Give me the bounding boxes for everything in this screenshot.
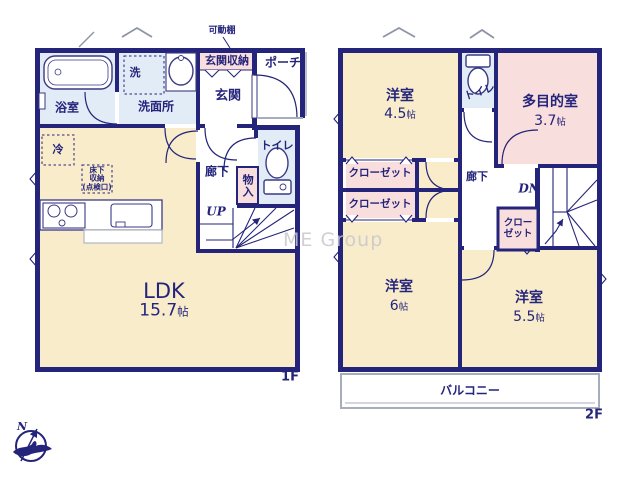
label-closet3: クロー ゼット: [504, 218, 533, 239]
label-ldk-size: 15.7帖: [139, 301, 188, 320]
label-bedroom2: 洋室: [385, 280, 413, 296]
label-fridge: 冷: [53, 144, 64, 156]
label-bedroom1: 洋室: [386, 89, 414, 105]
label-floor2: 2F: [585, 409, 603, 424]
bath-counter: [39, 93, 45, 109]
label-movable-shelf: 可動棚: [208, 26, 235, 36]
room-ldk-left: [40, 128, 196, 367]
toilet-tank-1f: [264, 180, 291, 194]
label-storage-1f: 物入: [241, 174, 253, 198]
shelf-callout-line: [223, 37, 230, 48]
stairs-2f: [545, 168, 597, 246]
label-floor1: 1F: [281, 371, 299, 386]
counter-front: [84, 230, 162, 243]
label-closet1: クローゼット: [349, 168, 412, 180]
label-toilet-1f: トイレ: [261, 140, 294, 152]
room-ldk-right: [196, 253, 295, 367]
floorplan-canvas: ME Group 可動棚 玄関収納 ポーチ 洗 浴室 洗面所 玄関 冷 床下 収…: [0, 0, 640, 480]
label-washroom: 洗面所: [138, 100, 174, 113]
label-stairs-up: UP: [206, 205, 226, 218]
label-compass-north: N: [17, 421, 27, 433]
label-entrance: 玄関: [215, 90, 241, 105]
label-stairs-down: DN: [518, 182, 539, 195]
compass-icon: [13, 429, 52, 461]
label-underfloor-storage: 床下 収納 (点検口): [82, 166, 111, 191]
label-bedroom3: 洋室: [515, 291, 543, 307]
label-bath: 浴室: [55, 101, 79, 114]
label-multipurpose: 多目的室: [522, 95, 578, 111]
label-bedroom2-size: 6帖: [390, 299, 408, 315]
label-balcony: バルコニー: [440, 384, 500, 397]
label-porch: ポーチ: [265, 56, 301, 69]
label-bedroom3-size: 5.5帖: [513, 310, 545, 326]
label-hallway-2f: 廊下: [466, 171, 488, 183]
label-multipurpose-size: 3.7帖: [534, 114, 566, 130]
label-bedroom1-size: 4.5帖: [384, 107, 416, 123]
toilet-bowl-1f: [266, 148, 288, 178]
label-closet2: クローゼット: [349, 199, 412, 211]
watermark-text: ME Group: [283, 229, 383, 251]
front-door-leaf: [252, 75, 257, 118]
vent-marks: [79, 28, 494, 47]
label-hallway-1f: 廊下: [205, 165, 229, 178]
label-laundry: 洗: [130, 67, 141, 79]
label-entrance-storage: 玄関収納: [205, 55, 249, 67]
sink-icon: [169, 57, 193, 85]
toilet-tank-2f: [466, 55, 490, 67]
